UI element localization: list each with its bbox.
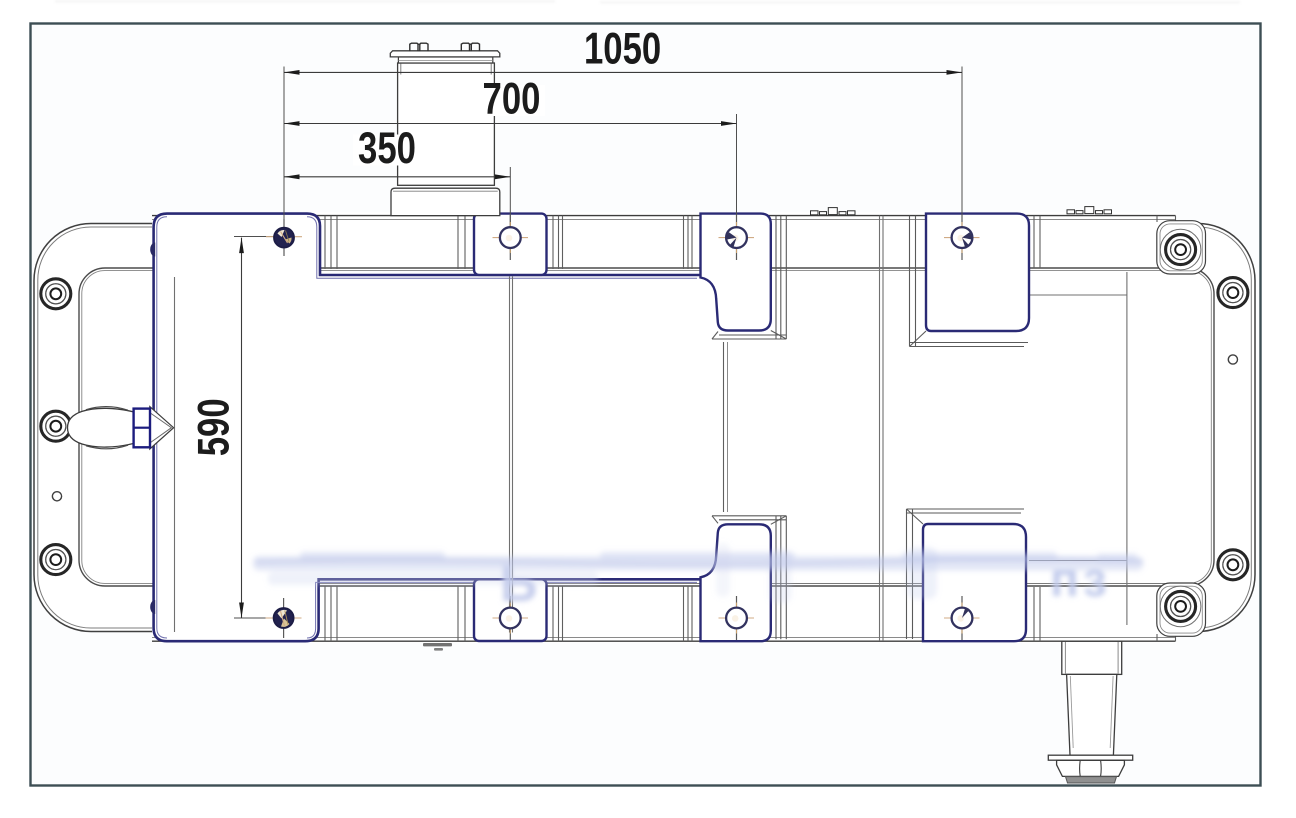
svg-text:700: 700 [483,74,541,123]
svg-text:1050: 1050 [584,24,661,73]
svg-text:Ь: Ь [500,555,537,613]
svg-text:350: 350 [358,124,416,173]
svg-text:590: 590 [189,398,238,456]
